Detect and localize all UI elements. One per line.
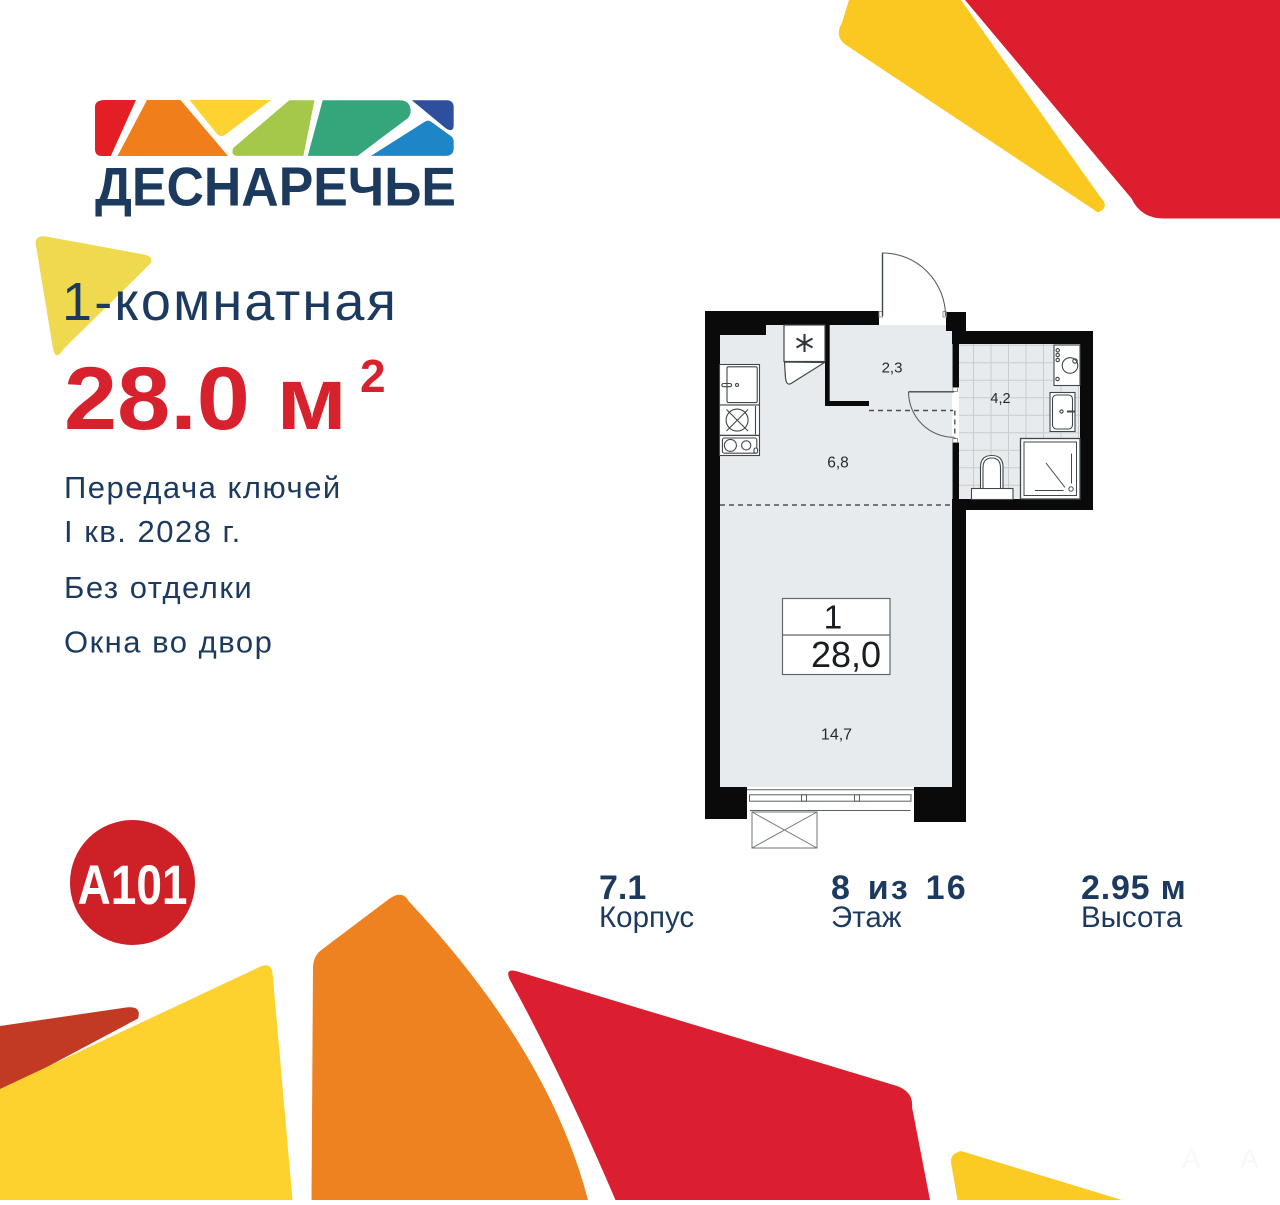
svg-text:ДЕСНАРЕЧЬЕ: ДЕСНАРЕЧЬЕ [95,156,456,218]
svg-text:Корпус: Корпус [599,901,694,934]
svg-text:Высота: Высота [1081,901,1183,934]
svg-text:14,7: 14,7 [821,727,852,744]
svg-text:Без отделки: Без отделки [64,570,253,605]
svg-text:Передача ключей: Передача ключей [64,470,342,505]
svg-text:6,8: 6,8 [827,455,849,472]
svg-text:А: А [1182,1143,1201,1174]
svg-text:1-комнатная: 1-комнатная [62,272,398,332]
svg-text:А: А [1240,1143,1259,1174]
svg-text:28,0: 28,0 [811,634,881,675]
svg-text:А101: А101 [78,853,188,916]
svg-text:4,2: 4,2 [990,391,1010,407]
svg-text:I кв. 2028 г.: I кв. 2028 г. [64,514,242,549]
svg-text:1: 1 [824,600,843,637]
svg-text:Этаж: Этаж [831,901,902,934]
svg-text:2: 2 [360,350,386,402]
svg-text:Окна во двор: Окна во двор [64,625,273,660]
svg-text:28.0 м: 28.0 м [64,348,347,448]
svg-text:2,3: 2,3 [882,360,903,377]
